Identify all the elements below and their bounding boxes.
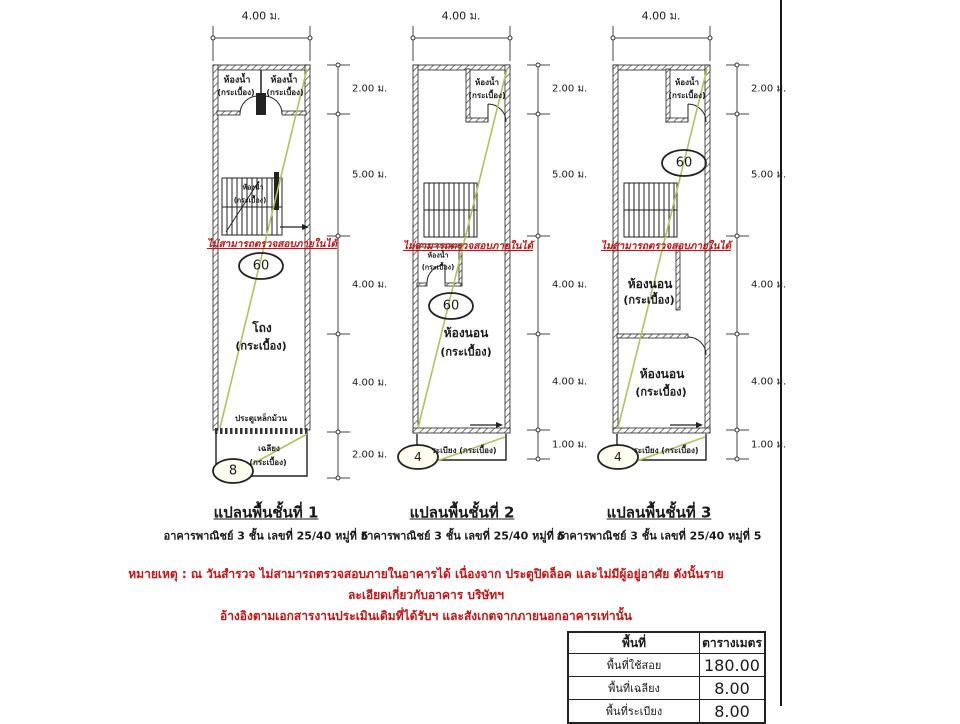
plan2-bath-mid-material: (กระเบื้อง) [422, 265, 455, 272]
plan1-dim-1: 2.00 ม. [352, 82, 387, 97]
area-summary-table: พื้นที่ ตารางเมตร พื้นที่ใช้สอย 180.00 พ… [567, 631, 766, 724]
survey-remark: หมายเหตุ : ณ วันสำรวจ ไม่สามารถตรวจสอบภา… [120, 564, 732, 627]
table-cell-usable-area-label: พื้นที่ใช้สอย [568, 654, 700, 677]
floorplan-page: { "dims": { "top": "4.00 ม.", "plan1": [… [0, 0, 960, 720]
plan2-walls [413, 65, 510, 460]
plan1-dim-5: 2.00 ม. [352, 448, 387, 463]
table-row: พื้นที่เฉลียง 8.00 [568, 677, 765, 700]
survey-remark-line2: อ้างอิงตามเอกสารงานประเมินเดิมที่ได้รับฯ… [120, 606, 732, 627]
plan1-area-value: 60 [253, 260, 270, 273]
table-row: พื้นที่ระเบียง 8.00 [568, 700, 765, 724]
plan2-width-dim: 4.00 ม. [442, 11, 481, 22]
plan1-bath-left-material: (กระเบื้อง) [217, 89, 254, 97]
plan1-no-access-note: ไม่สามารถตรวจสอบภายในได้ [207, 240, 337, 250]
table-cell-porch-area-label: พื้นที่เฉลียง [568, 677, 700, 700]
plan3-bath-top-material: (กระเบื้อง) [668, 92, 705, 100]
plan2-dim-2: 5.00 ม. [552, 168, 587, 183]
plan2-caption-title: แปลนพื้นชั้นที่ 2 [410, 506, 515, 521]
plan1-stair-bath-label: ห้องน้ำ [243, 185, 264, 192]
plan2-bath-top-label: ห้องน้ำ [475, 79, 499, 87]
table-header-sqm: ตารางเมตร [700, 632, 766, 654]
plan3-dim-4: 4.00 ม. [751, 375, 786, 390]
plan2-area-value: 60 [443, 300, 460, 313]
plan1-porch-material: (กระเบื้อง) [249, 459, 286, 467]
table-row: พื้นที่ใช้สอย 180.00 [568, 654, 765, 677]
plan1-dim-2: 5.00 ม. [352, 168, 387, 183]
plan1-bath-right-material: (กระเบื้อง) [266, 89, 303, 97]
plan2-bath-mid-label: ห้องน้ำ [428, 253, 449, 260]
plan3-dim-3: 4.00 ม. [751, 278, 786, 293]
table-cell-usable-area-value: 180.00 [700, 654, 766, 677]
plan1-bath-left-label: ห้องน้ำ [224, 77, 251, 86]
plan2-dim-5: 1.00 ม. [552, 438, 587, 453]
plan1-dim-4: 4.00 ม. [352, 376, 387, 391]
plan1-bath-right-label: ห้องน้ำ [271, 77, 298, 86]
plan1-width-dim: 4.00 ม. [242, 11, 281, 22]
survey-remark-line1: หมายเหตุ : ณ วันสำรวจ ไม่สามารถตรวจสอบภา… [120, 564, 732, 606]
plan3-no-access-note: ไม่สามารถตรวจสอบภายในได้ [601, 242, 731, 252]
table-header-area: พื้นที่ [568, 632, 700, 654]
plan2-bedroom-material: (กระเบื้อง) [440, 347, 491, 358]
plan3-bedroom-a-material: (กระเบื้อง) [623, 295, 674, 306]
plan1-hall-label: โถง [252, 322, 272, 334]
plan1-caption-title: แปลนพื้นชั้นที่ 1 [214, 506, 319, 521]
plan3-bath-top-label: ห้องน้ำ [675, 79, 699, 87]
plan3-dim-5: 1.00 ม. [751, 438, 786, 453]
plan1-dim-3: 4.00 ม. [352, 278, 387, 293]
plan3-bedroom-b-label: ห้องนอน [640, 368, 685, 380]
table-cell-porch-area-value: 8.00 [700, 677, 766, 700]
plan1-hall-material: (กระเบื้อง) [235, 341, 286, 352]
plan2-no-access-note: ไม่สามารถตรวจสอบภายในได้ [403, 242, 533, 252]
plan3-bedroom-b-material: (กระเบื้อง) [635, 387, 686, 398]
plan1-stair-bath-material: (กระเบื้อง) [234, 198, 267, 205]
plan3-bedroom-a-label: ห้องนอน [628, 278, 673, 290]
plan2-balcony-area-value: 4 [414, 451, 422, 463]
plan2-dim-4: 4.00 ม. [552, 375, 587, 390]
plan3-balcony-label: ระเบียง (กระเบื้อง) [633, 447, 698, 455]
plan3-caption-subtitle: อาคารพาณิชย์ 3 ชั้น เลขที่ 25/40 หมู่ที่… [557, 531, 762, 542]
table-cell-balcony-area-label: พื้นที่ระเบียง [568, 700, 700, 724]
plan2-balcony-label: ระเบียง (กระเบื้อง) [431, 447, 496, 455]
plan3-walls [613, 65, 710, 460]
plan3-dim-1: 2.00 ม. [751, 82, 786, 97]
plan3-survey-lines [618, 69, 707, 463]
plan1-roller-door-label: ประตูเหล็กม้วน [235, 415, 287, 423]
plan3-balcony-area-value: 4 [614, 451, 622, 463]
plan1-porch-label: เฉลียง [258, 445, 280, 453]
plan2-dim-1: 2.00 ม. [552, 82, 587, 97]
plan1-caption-subtitle: อาคารพาณิชย์ 3 ชั้น เลขที่ 25/40 หมู่ที่… [164, 531, 369, 542]
plan1-porch-area-value: 8 [229, 465, 237, 478]
plan3-caption-title: แปลนพื้นชั้นที่ 3 [607, 506, 712, 521]
table-cell-balcony-area-value: 8.00 [700, 700, 766, 724]
table-header-row: พื้นที่ ตารางเมตร [568, 632, 765, 654]
plan2-caption-subtitle: อาคารพาณิชย์ 3 ชั้น เลขที่ 25/40 หมู่ที่… [361, 531, 566, 542]
plan2-stairs [424, 183, 503, 428]
plan3-width-dim: 4.00 ม. [642, 11, 681, 22]
plan3-area-value: 60 [676, 157, 693, 170]
plan2-bath-top-material: (กระเบื้อง) [468, 92, 505, 100]
plan2-dim-3: 4.00 ม. [552, 278, 587, 293]
plan3-dim-2: 5.00 ม. [751, 168, 786, 183]
plan2-bedroom-label: ห้องนอน [444, 327, 489, 339]
